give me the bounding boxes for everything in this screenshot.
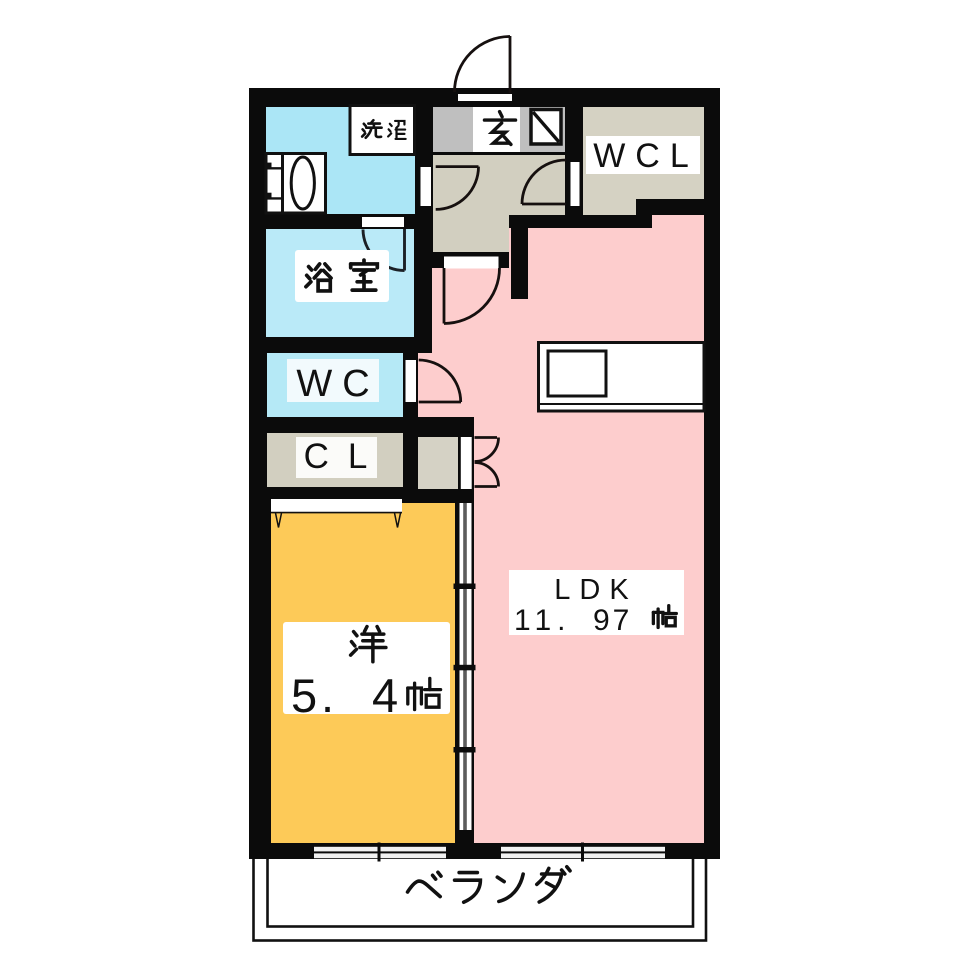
svg-text:CL: CL xyxy=(304,437,387,476)
svg-text:LDK: LDK xyxy=(554,574,637,606)
svg-text:5: 5 xyxy=(291,669,317,722)
svg-text:97: 97 xyxy=(593,604,632,637)
svg-text:WC: WC xyxy=(296,363,379,405)
svg-text:4: 4 xyxy=(372,669,398,722)
svg-text:WCL: WCL xyxy=(593,137,699,175)
svg-text:11.: 11. xyxy=(514,604,571,637)
svg-text:.: . xyxy=(321,669,334,722)
